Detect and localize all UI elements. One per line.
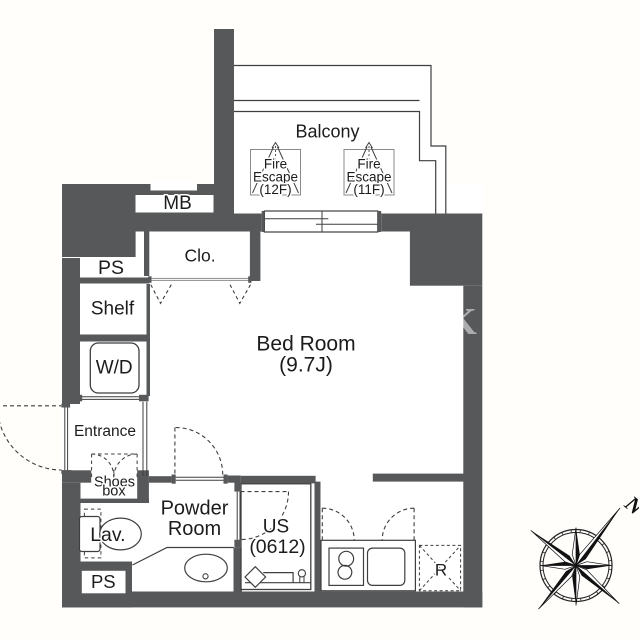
svg-text:box: box xyxy=(102,484,126,500)
svg-text:Room: Room xyxy=(168,518,221,540)
svg-text:PS: PS xyxy=(98,257,124,279)
svg-text:Bed Room: Bed Room xyxy=(256,333,355,356)
svg-text:(0612): (0612) xyxy=(249,536,305,558)
svg-text:W/D: W/D xyxy=(96,358,133,379)
svg-text:Powder: Powder xyxy=(161,498,229,520)
svg-text:Clo.: Clo. xyxy=(184,245,215,265)
svg-text:Balcony: Balcony xyxy=(295,122,359,142)
svg-text:Entrance: Entrance xyxy=(74,423,136,440)
svg-text:K: K xyxy=(447,301,477,343)
svg-text:PS: PS xyxy=(91,571,116,592)
svg-text:Lav.: Lav. xyxy=(90,524,125,546)
svg-text:(9.7J): (9.7J) xyxy=(279,354,333,377)
svg-text:(12F): (12F) xyxy=(259,182,291,197)
svg-text:MB: MB xyxy=(163,193,192,214)
svg-text:(11F): (11F) xyxy=(353,182,384,197)
svg-text:Shelf: Shelf xyxy=(91,299,135,320)
svg-text:R: R xyxy=(435,561,447,580)
svg-text:US: US xyxy=(263,517,289,538)
